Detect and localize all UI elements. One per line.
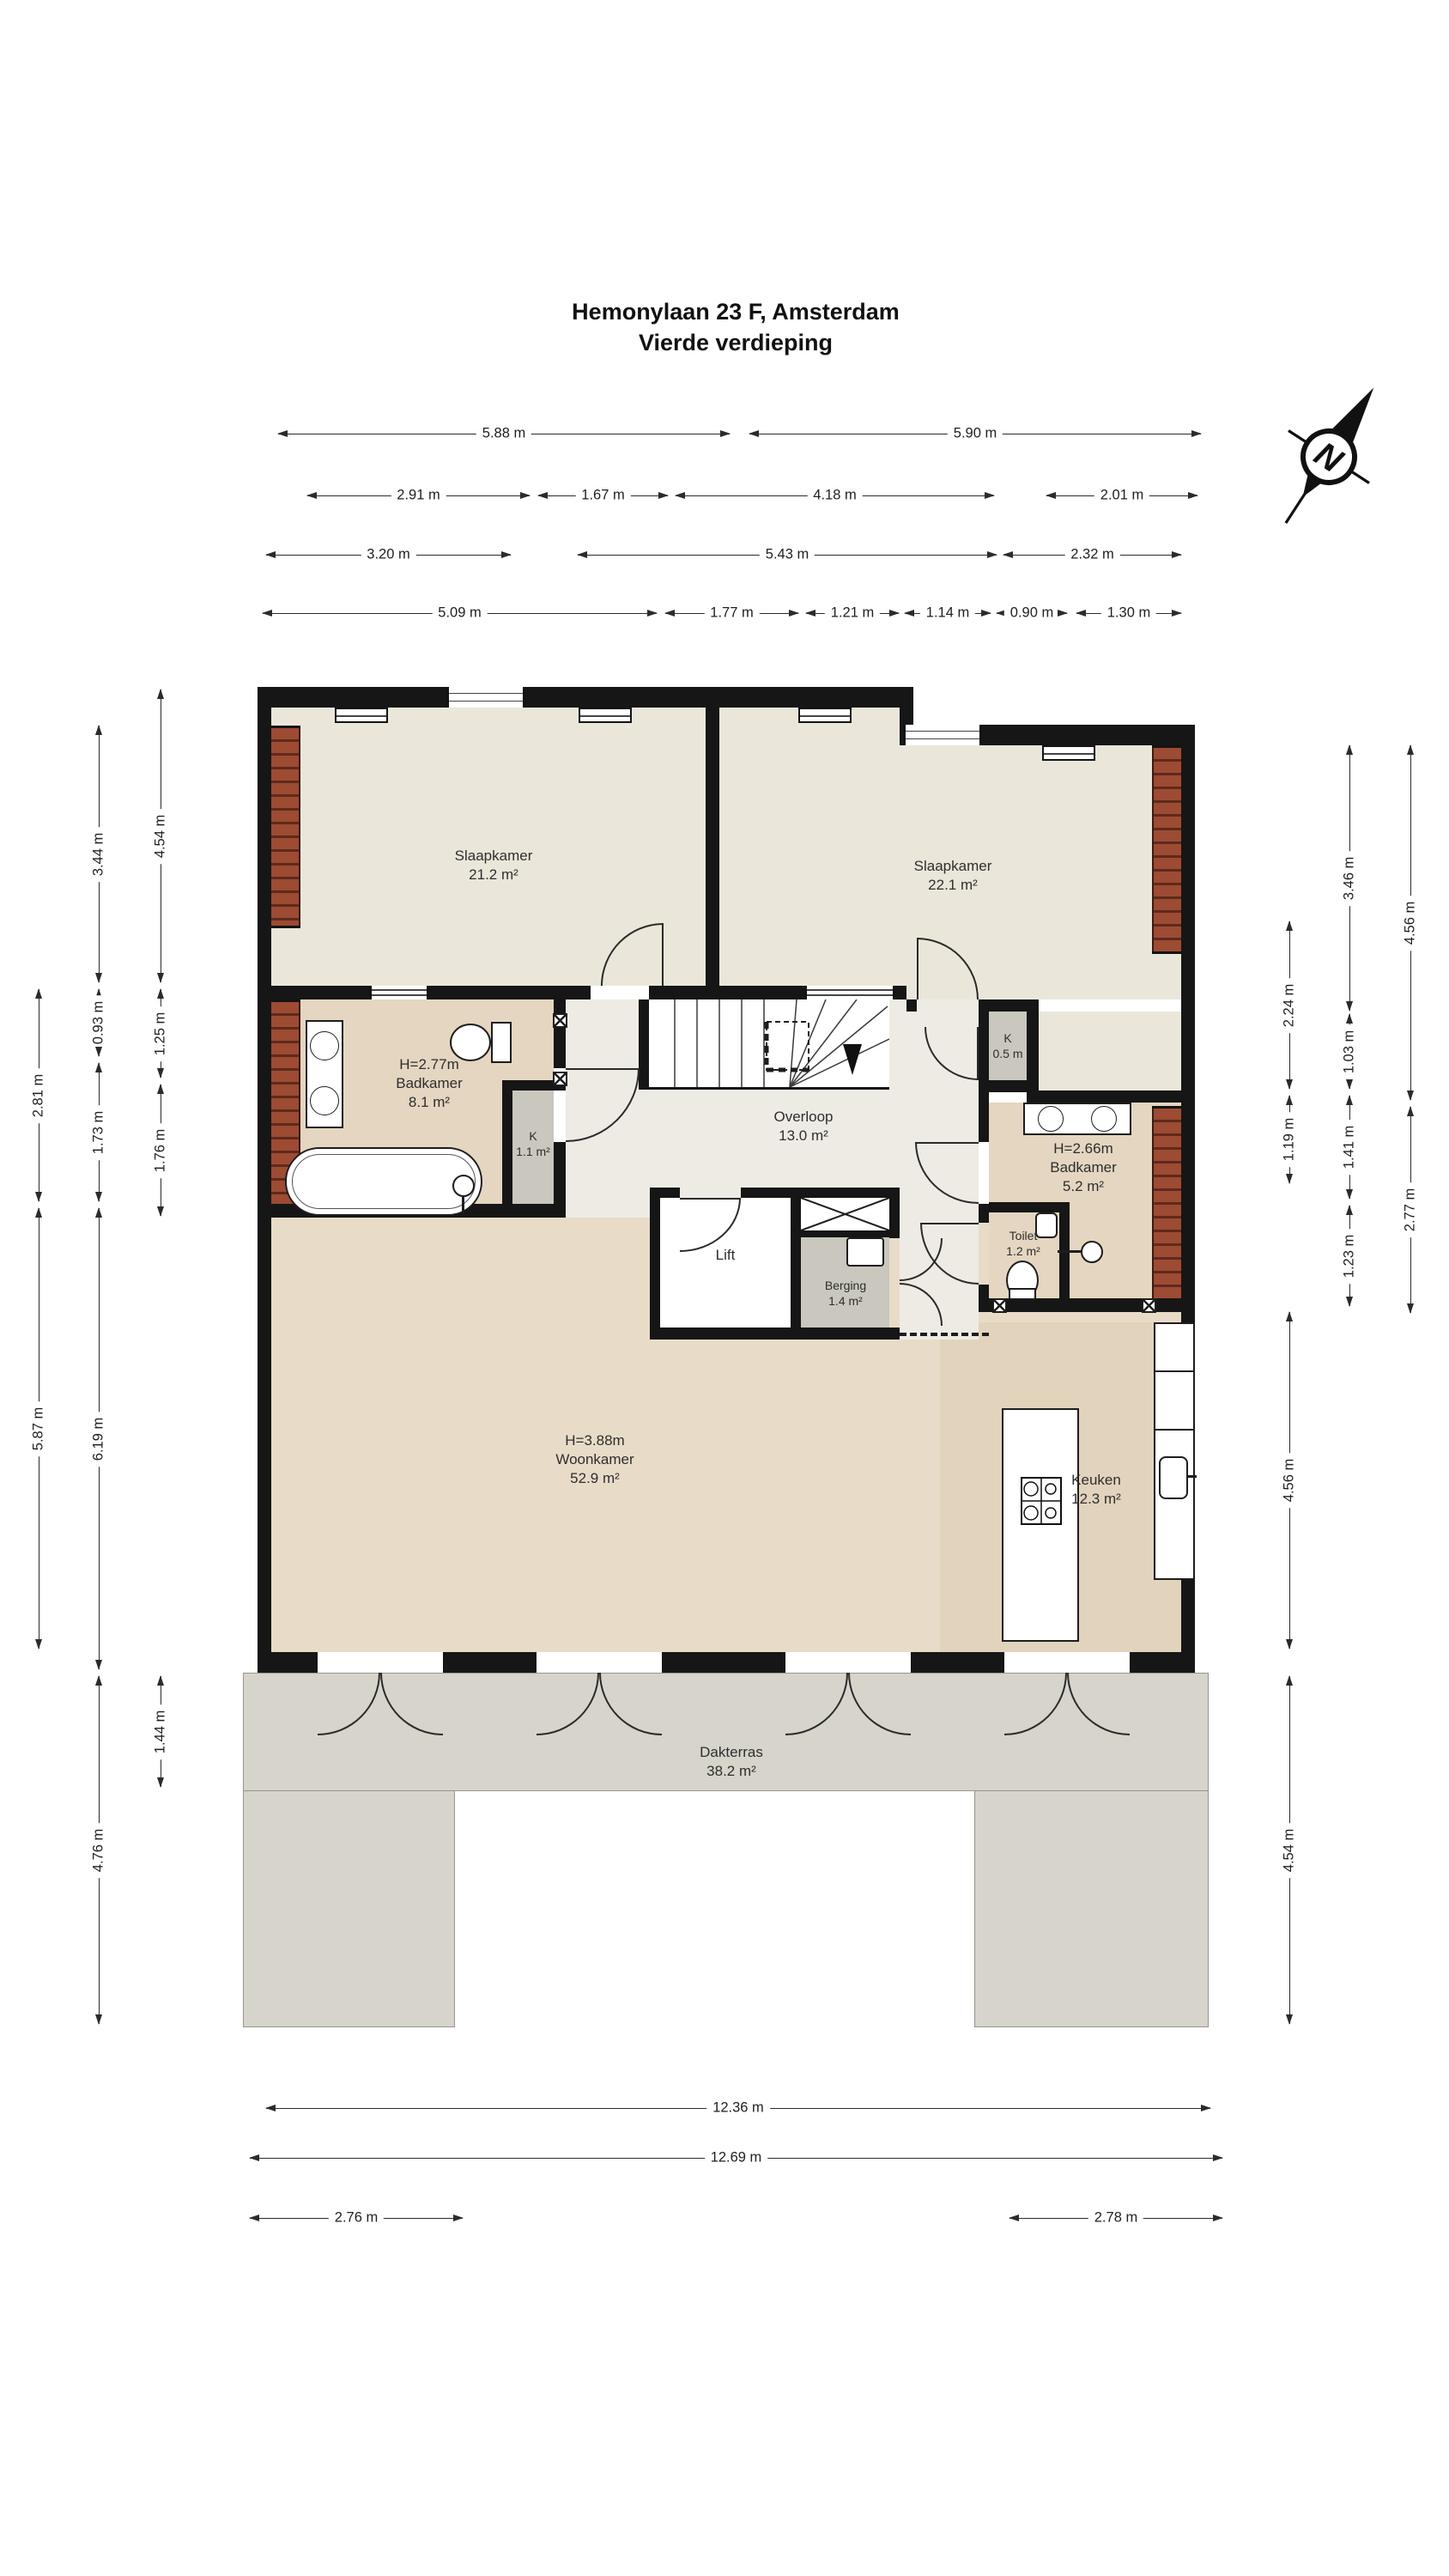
- kitchen-sink-icon: [1159, 1456, 1188, 1499]
- door-leaf: [977, 1027, 979, 1080]
- room-label-living: H=3.88mWoonkamer52.9 m²: [555, 1431, 634, 1488]
- dimension-label: 4.56 m: [1282, 1453, 1298, 1508]
- dimension: 1.73 m: [99, 1063, 100, 1201]
- dimension: 3.46 m: [1349, 745, 1350, 1011]
- dimension-label: 3.44 m: [91, 826, 107, 881]
- room-label-berging: Berging1.4 m²: [825, 1278, 866, 1309]
- dimension: 5.90 m: [749, 434, 1201, 434]
- dimension-label: 2.32 m: [1064, 547, 1119, 563]
- sink-icon: [1038, 1106, 1064, 1132]
- dimension-label: 5.88 m: [476, 426, 531, 442]
- room-label-bedroom-right: Slaapkamer22.1 m²: [914, 857, 992, 895]
- door-leaf: [920, 1223, 979, 1224]
- dimension-label: 5.43 m: [760, 547, 815, 563]
- window: [369, 986, 429, 999]
- dimension-label: 12.69 m: [705, 2150, 768, 2166]
- dimension: 1.03 m: [1349, 1014, 1350, 1089]
- dimension: 2.78 m: [1009, 2218, 1222, 2219]
- vent-icon: [1142, 1298, 1156, 1313]
- compass-icon: N: [1243, 371, 1415, 543]
- dimension-label: 12.36 m: [706, 2100, 770, 2117]
- sink-icon: [1091, 1106, 1117, 1132]
- dimension: 2.81 m: [39, 989, 39, 1201]
- roof-window-icon: [335, 708, 388, 723]
- dimension: 5.09 m: [263, 613, 657, 614]
- roof-window-icon: [798, 708, 852, 723]
- dimension: 4.56 m: [1289, 1312, 1290, 1649]
- vent-icon: [992, 1298, 1007, 1313]
- dimension-label: 4.76 m: [91, 1822, 107, 1877]
- dimension-label: 2.91 m: [391, 488, 446, 504]
- dimension: 6.19 m: [99, 1208, 100, 1669]
- room-label-lift: Lift: [716, 1246, 736, 1265]
- dimension-label: 0.93 m: [91, 995, 107, 1050]
- roof-tiles-icon: [1152, 745, 1181, 954]
- dimension: 4.76 m: [99, 1676, 100, 2024]
- room-label-overloop: Overloop13.0 m²: [774, 1108, 834, 1145]
- window: [804, 986, 895, 999]
- dimension: 4.18 m: [676, 495, 994, 496]
- dimension: 0.93 m: [99, 989, 100, 1056]
- dimension: 1.14 m: [905, 613, 991, 614]
- roof-window-icon: [1042, 745, 1095, 761]
- page-title: Hemonylaan 23 F, Amsterdam Vierde verdie…: [572, 296, 900, 359]
- dimension: 2.76 m: [250, 2218, 463, 2219]
- dimension: 1.19 m: [1289, 1096, 1290, 1183]
- dimension: 1.77 m: [665, 613, 798, 614]
- room-bedroom-right: [719, 708, 900, 999]
- door-leaf: [680, 1198, 741, 1200]
- shower-icon: [452, 1175, 475, 1197]
- dimension-label: 3.46 m: [1342, 850, 1358, 905]
- dimension: 1.41 m: [1349, 1096, 1350, 1199]
- dimension-label: 0.90 m: [1004, 605, 1059, 622]
- dimension: 2.24 m: [1289, 921, 1290, 1089]
- dimension: 5.43 m: [578, 555, 997, 556]
- dimension-label: 2.81 m: [31, 1067, 47, 1122]
- door-leaf: [917, 938, 919, 999]
- dimension: 2.32 m: [1003, 555, 1181, 556]
- dimension-label: 3.20 m: [361, 547, 415, 563]
- roof-window-icon: [579, 708, 632, 723]
- dimension-label: 1.14 m: [920, 605, 975, 622]
- dimension-label: 6.19 m: [91, 1411, 107, 1466]
- dimension-label: 2.76 m: [329, 2210, 384, 2227]
- dimension: 4.54 m: [161, 690, 161, 982]
- dimension-label: 4.54 m: [153, 808, 169, 863]
- dimension-label: 1.76 m: [153, 1122, 169, 1177]
- toilet-tank-icon: [491, 1022, 512, 1063]
- floorplan-page: Hemonylaan 23 F, Amsterdam Vierde verdie…: [0, 0, 1449, 2576]
- hob-icon: [1021, 1477, 1062, 1525]
- room-label-terrace: Dakterras38.2 m²: [700, 1743, 763, 1781]
- sink-icon: [310, 1031, 339, 1060]
- dimension-label: 2.78 m: [1088, 2210, 1143, 2227]
- dimension-label: 2.01 m: [1094, 488, 1149, 504]
- kitchen-counter: [1154, 1322, 1195, 1580]
- title-address: Hemonylaan 23 F, Amsterdam: [572, 296, 900, 327]
- dimension: 4.56 m: [1410, 745, 1411, 1100]
- dimension-label: 1.25 m: [153, 1005, 169, 1060]
- opening-dashed-line: [900, 1333, 989, 1336]
- roof-tiles-icon: [1152, 1106, 1181, 1303]
- faucet-icon: [1186, 1475, 1197, 1478]
- dimension: 1.44 m: [161, 1676, 161, 1787]
- dimension-label: 1.03 m: [1342, 1024, 1358, 1078]
- dimension-label: 5.09 m: [432, 605, 487, 622]
- room-label-kitchen: Keuken12.3 m²: [1071, 1471, 1121, 1509]
- dimension: 12.69 m: [250, 2158, 1222, 2159]
- dimension-label: 4.54 m: [1282, 1822, 1298, 1877]
- shower-arm: [1058, 1250, 1082, 1253]
- window: [903, 725, 982, 745]
- title-floor: Vierde verdieping: [572, 327, 900, 358]
- dimension: 2.91 m: [307, 495, 530, 496]
- dimension-label: 4.18 m: [807, 488, 862, 504]
- dimension: 1.30 m: [1076, 613, 1181, 614]
- room-bedroom-right-3: [1039, 1012, 1181, 1094]
- boiler-icon: [846, 1237, 884, 1267]
- door-leaf: [662, 923, 664, 986]
- shower-icon: [1081, 1241, 1103, 1263]
- counter-divider: [1154, 1370, 1195, 1372]
- dimension: 4.54 m: [1289, 1676, 1290, 2024]
- dimension: 3.20 m: [266, 555, 511, 556]
- wardrobe-icon: [801, 1198, 889, 1230]
- dimension-label: 1.21 m: [825, 605, 880, 622]
- dimension-label: 4.56 m: [1403, 895, 1419, 950]
- dimension-label: 2.24 m: [1282, 977, 1298, 1032]
- dimension: 3.44 m: [99, 726, 100, 982]
- staircase: [649, 999, 889, 1087]
- door-leaf: [566, 1068, 640, 1070]
- dimension: 1.76 m: [161, 1084, 161, 1216]
- terrace-left-leg: [243, 1790, 455, 2027]
- dimension: 1.23 m: [1349, 1206, 1350, 1306]
- dimension-label: 1.44 m: [153, 1704, 169, 1759]
- dimension-label: 1.19 m: [1282, 1112, 1298, 1167]
- shower-stem: [462, 1197, 464, 1214]
- dimension: 0.90 m: [997, 613, 1067, 614]
- dimension-label: 5.87 m: [31, 1400, 47, 1455]
- room-label-bathroom-right: H=2.66mBadkamer5.2 m²: [1050, 1139, 1116, 1196]
- dimension: 5.87 m: [39, 1208, 39, 1649]
- dimension: 5.88 m: [278, 434, 730, 434]
- dimension: 1.25 m: [161, 989, 161, 1078]
- toilet-seat-icon: [1009, 1288, 1036, 1300]
- dimension: 1.21 m: [806, 613, 899, 614]
- counter-divider: [1154, 1429, 1195, 1431]
- room-label-bedroom-left: Slaapkamer21.2 m²: [455, 847, 533, 884]
- dimension-label: 1.73 m: [91, 1104, 107, 1159]
- dimension: 12.36 m: [266, 2108, 1210, 2109]
- dimension-label: 1.77 m: [704, 605, 759, 622]
- dimension-label: 1.23 m: [1342, 1228, 1358, 1283]
- terrace-right-leg: [974, 1790, 1209, 2027]
- dimension-label: 1.67 m: [575, 488, 630, 504]
- dimension: 2.01 m: [1046, 495, 1197, 496]
- window: [446, 687, 525, 708]
- door-leaf: [915, 1142, 979, 1144]
- room-label-toilet: Toilet1.2 m²: [1006, 1228, 1040, 1259]
- dimension-label: 1.30 m: [1101, 605, 1156, 622]
- sink-icon: [310, 1086, 339, 1115]
- room-label-closet-left: K1.1 m²: [516, 1128, 550, 1159]
- dimension: 2.77 m: [1410, 1107, 1411, 1313]
- room-label-bathroom-left: H=2.77mBadkamer8.1 m²: [396, 1055, 462, 1112]
- roof-tiles-icon: [271, 726, 300, 928]
- room-label-closet-right: K0.5 m: [992, 1030, 1022, 1061]
- dimension-label: 1.41 m: [1342, 1120, 1358, 1175]
- dimension-label: 2.77 m: [1403, 1182, 1419, 1237]
- dimension: 1.67 m: [538, 495, 668, 496]
- vent-icon: [553, 1013, 567, 1028]
- dimension-label: 5.90 m: [948, 426, 1003, 442]
